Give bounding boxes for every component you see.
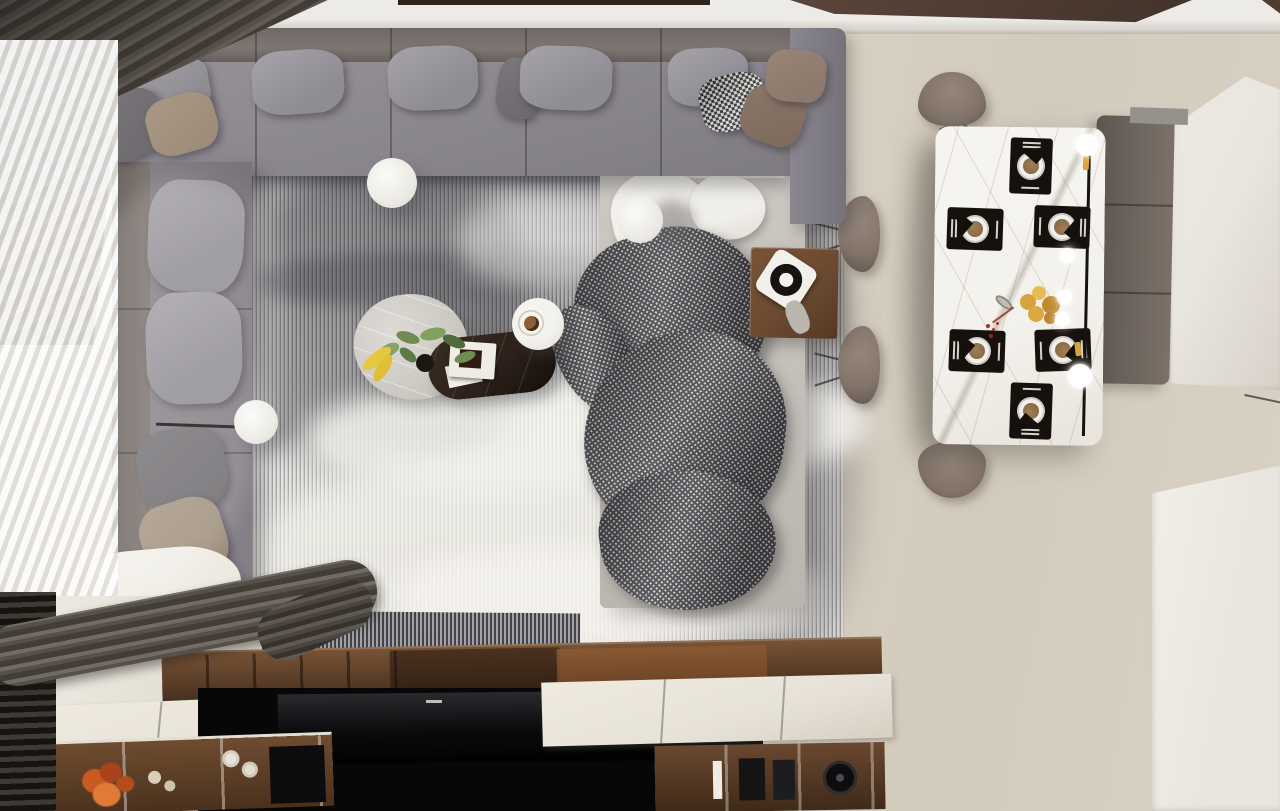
marble-disc-lamp [367,158,417,208]
pillow-brown [764,48,827,104]
bananas [360,348,400,388]
plant-pot [416,354,434,372]
sofa-seam [660,28,662,176]
white-partition [1148,462,1280,811]
tv-logo [426,700,442,703]
book-spine [713,761,723,799]
coffee-cup [518,310,544,336]
pendant-bulb [1055,312,1070,327]
berry [996,322,999,325]
black-box [739,758,766,800]
bench-seam [1093,291,1171,295]
pillow [386,44,479,113]
pendant-socket [1083,156,1089,170]
counter-seam [660,679,665,743]
speaker [269,745,326,804]
leaf [441,332,467,352]
berry [989,334,993,338]
flower [1028,306,1044,322]
pendant-bulb [1068,364,1092,388]
place-setting [1009,137,1053,194]
bench-seam [1095,203,1173,207]
sheer-curtain [0,40,118,640]
leaf [395,329,421,347]
coffee [524,316,539,331]
pendant-bulb [1057,290,1072,305]
living-room-top-view [0,0,1280,811]
seed-sphere [164,780,175,791]
open-shelf-left [27,735,334,811]
pillow [519,44,613,111]
round-mini-table [512,298,564,350]
dried-orange-flowers [75,759,157,811]
rolled-towel [222,750,240,768]
place-setting [946,207,1003,251]
berry-sprig [984,298,1028,348]
place-setting [1009,382,1053,439]
open-shelf-right [654,742,885,811]
pendant-bulb [1060,248,1075,263]
ceiling-rail [398,0,710,5]
black-box [773,760,796,800]
rolled-towel [242,761,259,778]
pillow [250,47,346,117]
marble-counter-right [541,673,893,746]
dining-chair-left [838,326,880,404]
marble-disc-lamp [617,197,663,243]
leaf [453,349,477,366]
round-speaker [823,760,858,795]
walnut-side-table [749,247,839,339]
stem [992,307,1014,323]
flower [116,776,135,793]
speaker-cone [836,774,844,782]
seed-sphere [148,771,161,784]
place-setting [1033,205,1090,249]
bench-end-cap [1130,107,1189,125]
berry [986,324,990,328]
pendant-bulb [1076,134,1098,156]
sofa-seam [390,28,392,176]
berry [992,328,995,331]
gray-cloth [782,298,814,337]
counter-seam [780,676,785,740]
